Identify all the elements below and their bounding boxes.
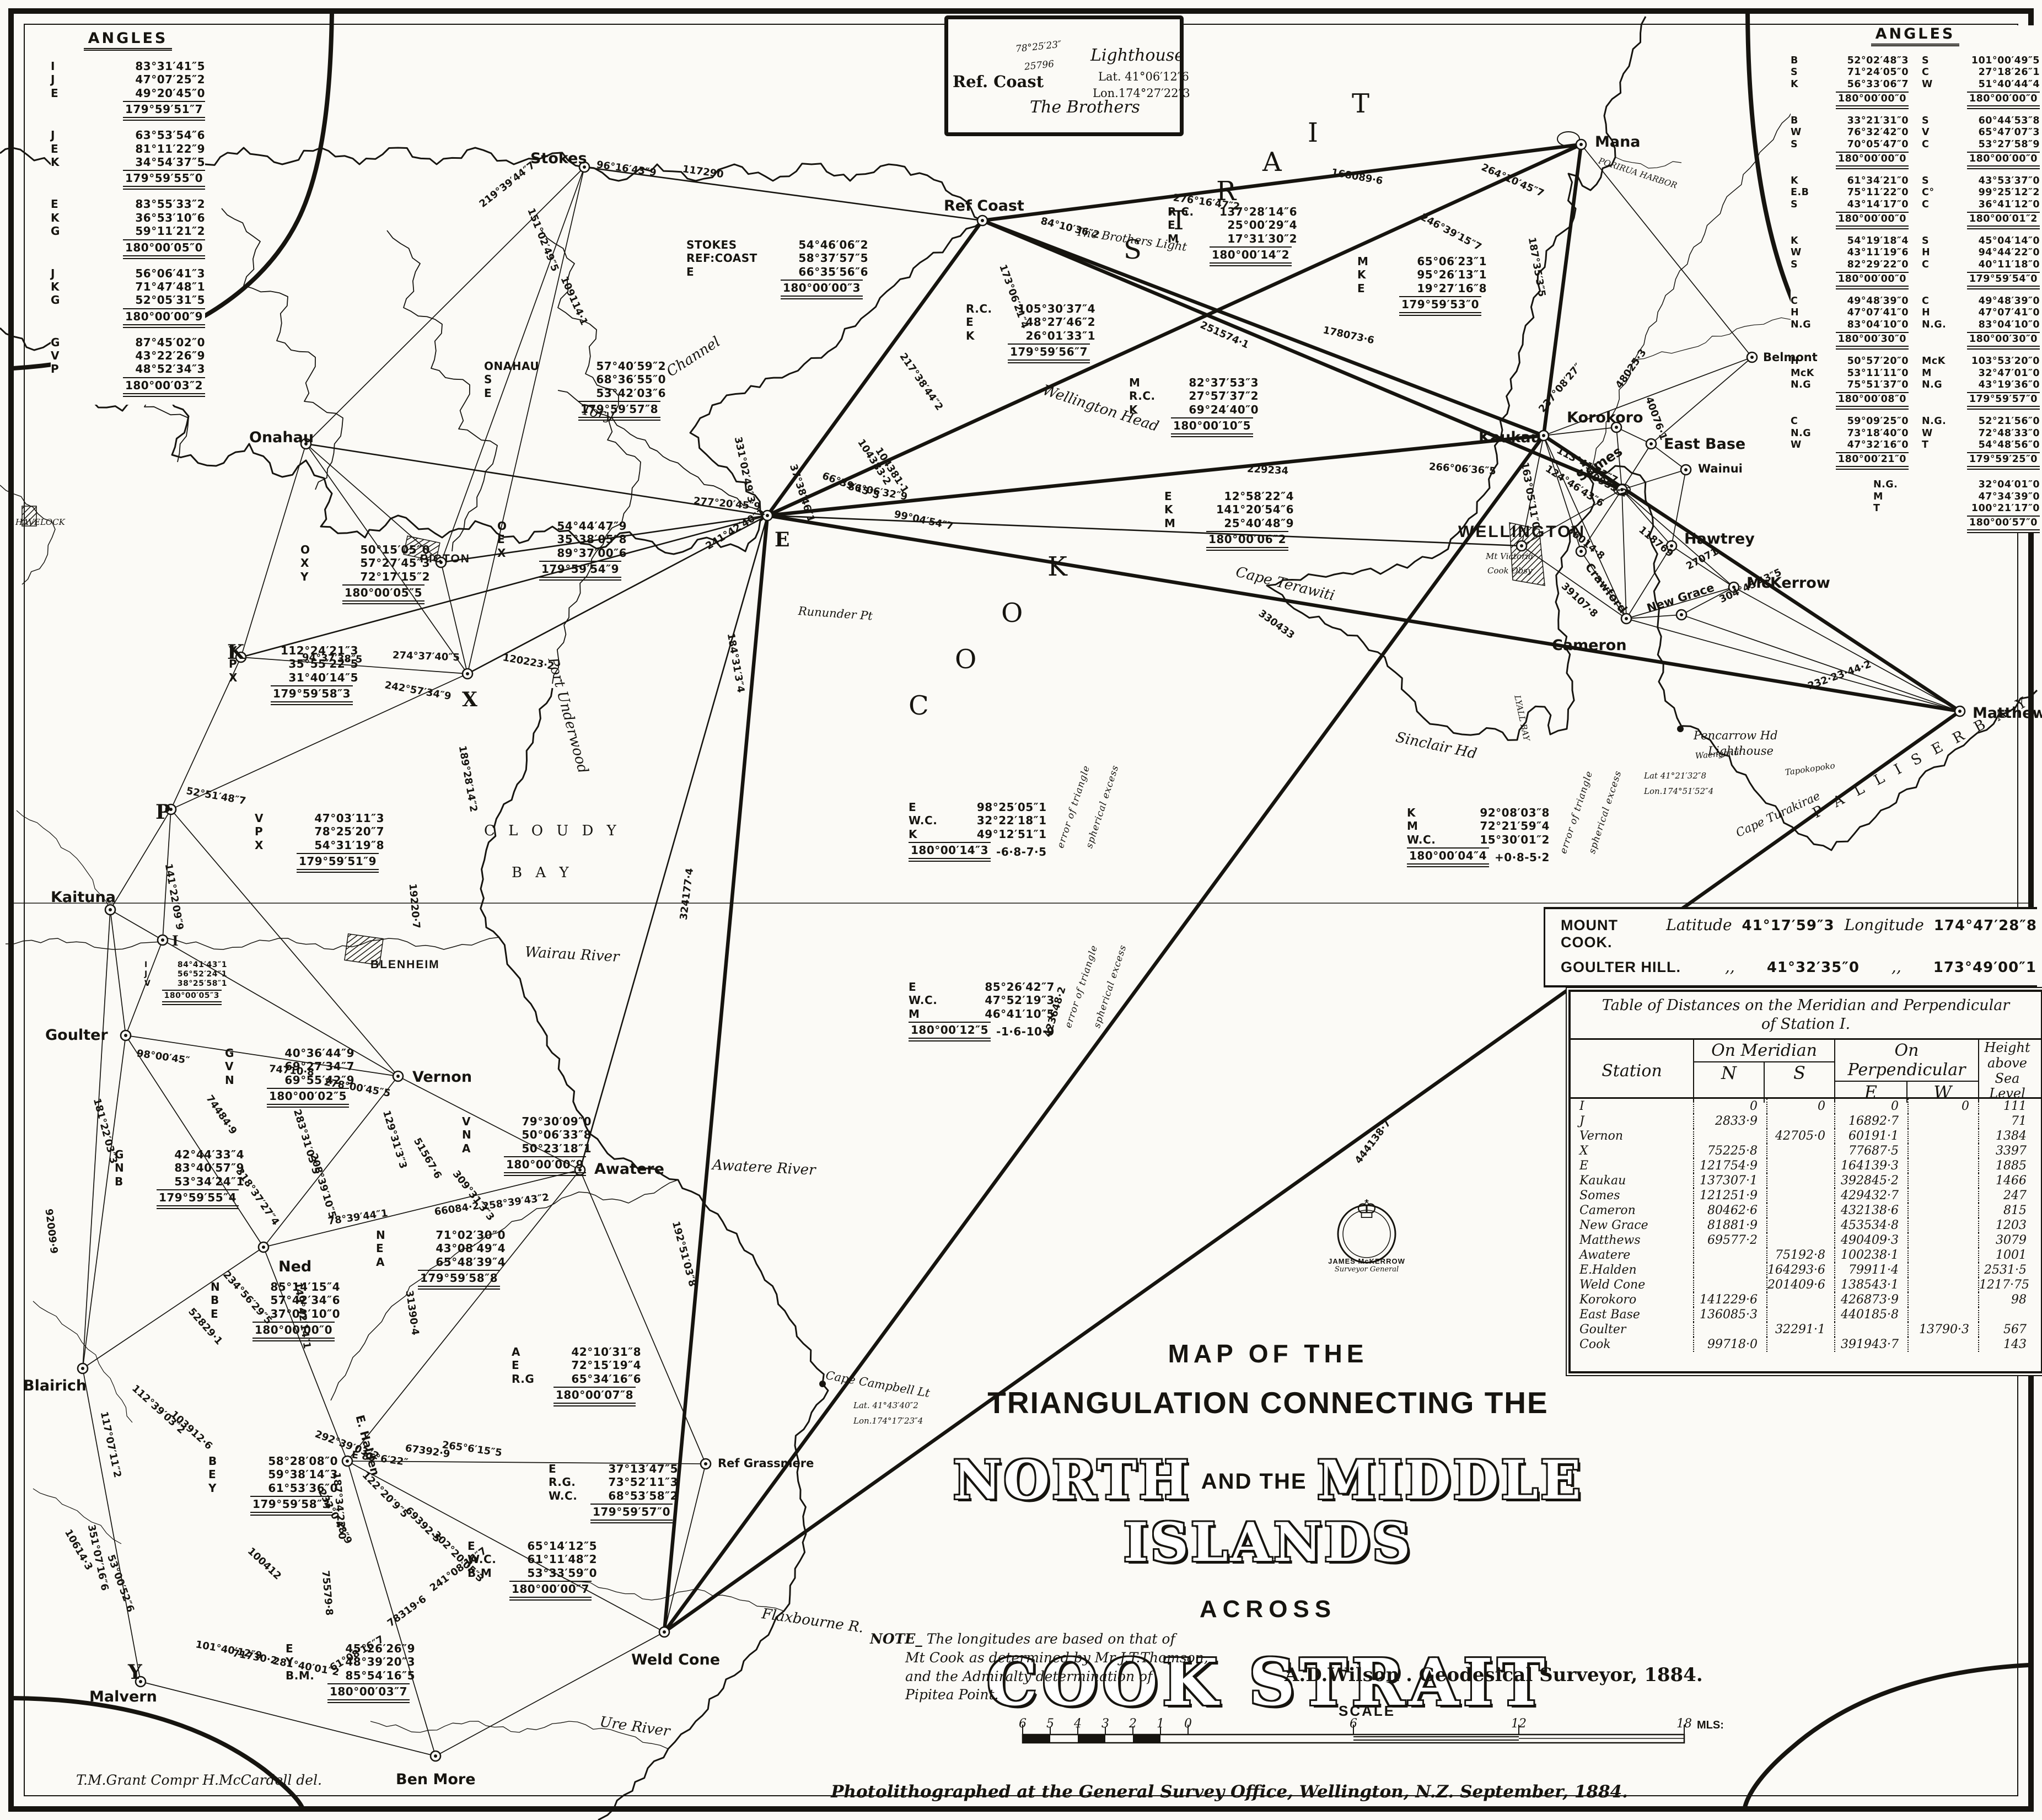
station-marker: [78, 1363, 88, 1373]
angle-block: E12°58′22″4K141°20′54″6M25°40′48″9 180°0…: [1164, 490, 1294, 551]
angle-row: E81°11′22″9: [51, 142, 205, 155]
place-label: Cameron: [1552, 637, 1627, 654]
angle-row: C36°41′12″0: [1922, 199, 2040, 211]
table-cell-s: [1766, 1188, 1834, 1203]
angles-panel-right: ANGLES B52°02′48″3S71°24′05″0K56°33′06″7…: [1791, 25, 2040, 533]
mc-name: MOUNT COOK.: [1561, 917, 1656, 951]
table-cell-station: Vernon: [1571, 1129, 1693, 1143]
table-cell-s: [1766, 1307, 1834, 1322]
angle-sum-row: 179°59′25″0: [1922, 452, 2040, 470]
table-cell-w: [1907, 1248, 1978, 1263]
place-label: E: [775, 528, 789, 551]
table-cell-w: [1907, 1114, 1978, 1129]
angle-block: C49°48′39″0H47°07′41″0N.G.83°04′10″0 180…: [1922, 296, 2040, 350]
table-cell-e: 79911·4: [1834, 1263, 1907, 1277]
place-label: T: [1170, 205, 1187, 236]
angle-row: E98°25′05″1: [909, 801, 1047, 814]
angle-row: M32°47′01″0: [1922, 368, 2040, 379]
angle-row: B53°34′24″1: [115, 1175, 244, 1188]
angle-row: STOKES54°46′06″2: [686, 238, 868, 251]
angle-row: A50°23′18″1: [462, 1142, 592, 1155]
angle-block: E37°13′47″5R.G.73°52′11″3W.C.68°53′58″2 …: [549, 1462, 678, 1523]
angle-row: B58°28′08″0: [208, 1454, 338, 1468]
table-cell-s: 32291·1: [1766, 1322, 1834, 1337]
place-label: McKerrow: [1747, 575, 1830, 592]
table-cell-s: [1766, 1292, 1834, 1307]
angle-row: W.C.32°22′18″1: [909, 814, 1047, 827]
place-label: Hawtrey: [1684, 530, 1755, 547]
title-and-the: AND THE: [1194, 1469, 1315, 1494]
seal-name: JAMES McKERROW: [1325, 1257, 1408, 1265]
table-cell-n: 0: [1693, 1099, 1766, 1114]
station-marker: [158, 935, 168, 945]
table-cell-e: 453534·8: [1834, 1218, 1907, 1233]
table-cell-w: [1907, 1337, 1978, 1352]
station-marker: [659, 1627, 669, 1637]
coastline-path: [387, 230, 497, 551]
table-cell-station: Somes: [1571, 1188, 1693, 1203]
table-cell-station: East Base: [1571, 1307, 1693, 1322]
table-cell-h: 1203: [1978, 1218, 2035, 1233]
angle-sum-row: 180°00′00″3: [686, 280, 868, 299]
note-label: NOTE_: [870, 1631, 927, 1647]
angles-right-bottom: N.G.32°04′01″0M47°34′39″0T100°21′17″0 18…: [1791, 479, 2040, 533]
angle-block: J63°53′54″6E81°11′22″9K34°54′37″5 179°59…: [51, 128, 205, 190]
table-cell-n: 80462·6: [1693, 1203, 1766, 1218]
station-marker: [121, 1030, 131, 1040]
angle-block: I84°41′43″1J56°52′24″1V38°25′58″1 180°00…: [144, 960, 227, 1005]
angle-sum-row: 180°00′00″0: [1791, 152, 1909, 169]
place-label: PICTON: [420, 552, 470, 566]
place-label: I: [172, 933, 179, 949]
angle-sum-row: 180°00′21″0: [1791, 452, 1909, 470]
survey-line: [110, 910, 163, 940]
title-line-1: MAP OF THE: [849, 1339, 1687, 1368]
survey-line: [110, 809, 171, 910]
table-cell-n: [1693, 1322, 1766, 1337]
table-cell-n: 137307·1: [1693, 1173, 1766, 1188]
angle-block: G87°45′02″0V43°22′26″9P48°52′34″3 180°00…: [51, 336, 205, 397]
table-cell-station: E: [1571, 1158, 1693, 1173]
table-cell-s: 164293·6: [1766, 1263, 1834, 1277]
angle-block: E83°55′33″2K36°53′10″6G59°11′21″2 180°00…: [51, 197, 205, 259]
angle-row: X89°37′00″6: [497, 546, 627, 560]
station-marker: [1576, 139, 1586, 149]
angle-row: M72°21′59″4: [1407, 819, 1550, 833]
angle-row: S68°36′55″0: [484, 373, 666, 386]
angle-block: V47°03′11″3P78°25′20″7X54°31′19″8 179°59…: [255, 812, 384, 873]
place-label: S: [1124, 234, 1142, 265]
angle-row: Y72°17′15″2: [300, 570, 430, 583]
scale-label: SCALE: [1339, 1703, 1395, 1720]
angle-sum-row: 179°59′55″0: [51, 170, 205, 190]
table-cell-h: 111: [1978, 1099, 2035, 1114]
angle-row: R.C.105°30′37″4: [966, 302, 1095, 315]
note-block: NOTE_The longitudes are based on that of…: [870, 1630, 1267, 1704]
angle-sum-row: 180°00′30″0: [1791, 332, 1909, 350]
angle-block: J56°06′41″3K71°47′48″1G52°05′31″5 180°00…: [51, 267, 205, 328]
station-marker: [463, 669, 472, 679]
angle-row: J63°53′54″6: [51, 128, 205, 142]
angle-sum-row: 180°00′04″4 +0·8-5·2 error of triangle s…: [1407, 847, 1550, 867]
table-cell-w: [1907, 1143, 1978, 1158]
table-cell-n: 81881·9: [1693, 1218, 1766, 1233]
table-cell-s: [1766, 1158, 1834, 1173]
table-cell-station: Awatere: [1571, 1248, 1693, 1263]
angle-row: P78°25′20″7: [255, 825, 384, 838]
table-row: East Base136085·3440185·8: [1571, 1307, 2041, 1322]
table-cell-n: [1693, 1277, 1766, 1292]
angle-row: M65°06′23″1: [1357, 255, 1487, 268]
angle-row: J56°06′41″3: [51, 267, 205, 280]
table-cell-s: [1766, 1233, 1834, 1248]
angle-row: C49°48′39″0: [1791, 296, 1909, 307]
survey-measurement-label: 229234: [1246, 463, 1288, 477]
table-cell-s: [1766, 1218, 1834, 1233]
note-line: and the Admiralty determination of: [870, 1667, 1267, 1686]
table-cell-w: [1907, 1188, 1978, 1203]
table-cell-e: 77687·5: [1834, 1143, 1907, 1158]
table-row: J2833·916892·771: [1571, 1114, 2041, 1129]
place-label: WELLINGTON: [1458, 523, 1586, 541]
place-label: Malvern: [89, 1688, 157, 1705]
angle-row: C40°11′18″0: [1922, 259, 2040, 271]
station-marker: [431, 1751, 440, 1761]
place-label: Ben More: [396, 1771, 476, 1788]
angle-row: G87°45′02″0: [51, 336, 205, 349]
scale-tick: 5: [1046, 1717, 1054, 1731]
table-cell-n: [1693, 1129, 1766, 1143]
angle-row: M82°37′53″3: [1129, 376, 1259, 389]
note-line: The longitudes are based on that of: [927, 1631, 1175, 1647]
table-cell-station: Weld Cone: [1571, 1277, 1693, 1292]
angle-block: O54°44′47″9E35°38′05″8X89°37′00″6 179°59…: [497, 519, 627, 581]
angle-row: N.G.52°21′56″0: [1922, 416, 2040, 427]
table-cell-e: 164139·3: [1834, 1158, 1907, 1173]
table-cell-e: 391943·7: [1834, 1337, 1907, 1352]
table-cell-station: Goulter: [1571, 1322, 1693, 1337]
angle-sum-row: 179°59′56″7: [966, 343, 1095, 363]
angle-row: X54°31′19″8: [255, 839, 384, 852]
imprint: Photolithographed at the General Survey …: [788, 1782, 1670, 1802]
table-cell-s: 75192·8: [1766, 1248, 1834, 1263]
inset-bearing: 78°25′23″: [1015, 39, 1062, 55]
angle-row: C49°48′39″0: [1922, 296, 2040, 307]
table-cell-w: [1907, 1218, 1978, 1233]
title-line-2: TRIANGULATION CONNECTING THE: [849, 1385, 1687, 1420]
table-cell-s: 201409·6: [1766, 1277, 1834, 1292]
place-label: Mana: [1595, 133, 1641, 151]
table-cell-h: 71: [1978, 1114, 2035, 1129]
angle-block: B52°02′48″3S71°24′05″0K56°33′06″7 180°00…: [1791, 55, 1909, 109]
angle-block: E65°14′12″5W.C.61°11′48″2B.M53°33′59″0 1…: [467, 1539, 597, 1601]
angle-row: N.G83°04′10″0: [1791, 319, 1909, 331]
angle-block: ONAHAU57°40′59″2S68°36′55″0E53°42′03″6 1…: [484, 359, 666, 421]
place-label: X: [462, 688, 477, 711]
table-cell-w: 0: [1907, 1099, 1978, 1114]
survey-line: [1616, 427, 1651, 444]
angle-sum-row: 180°00′00″9: [51, 308, 205, 328]
angle-row: E37°13′47″5: [549, 1462, 678, 1475]
angles-right-col1: B52°02′48″3S71°24′05″0K56°33′06″7 180°00…: [1791, 55, 1909, 476]
map-sheet: ANGLES I83°31′41″5J47°07′25″2E49°20′45″0…: [0, 0, 2042, 1820]
angle-sum-row: 180°00′01″2: [1922, 212, 2040, 229]
angle-block: N.G.52°21′56″0W72°48′33″0T54°48′56″0 179…: [1922, 416, 2040, 470]
table-cell-e: 16892·7: [1834, 1114, 1907, 1129]
gh-ditto2: ,,: [1869, 958, 1901, 976]
table-cell-station: Korokoro: [1571, 1292, 1693, 1307]
author-line: A.D.Wilson . Geodesical Surveyor, 1884.: [1285, 1664, 1703, 1686]
survey-line: [110, 910, 126, 1035]
table-cell-w: [1907, 1203, 1978, 1218]
angle-row: McK103°53′20″0: [1922, 356, 2040, 367]
angle-row: K95°26′13″1: [1357, 268, 1487, 281]
angle-sum-row: 180°00′02″5: [225, 1088, 354, 1108]
angle-sum-row: 180°00′57″0: [1873, 516, 2040, 533]
angle-row: K34°54′37″5: [51, 155, 205, 169]
angle-row: B57°42′34″6: [211, 1293, 340, 1307]
place-label: Lat 41°21′32″8: [1644, 771, 1706, 781]
angle-row: V43°22′26″9: [51, 349, 205, 362]
table-cell-s: 42705·0: [1766, 1129, 1834, 1143]
place-label: K: [1047, 551, 1067, 582]
table-cell-n: 69577·2: [1693, 1233, 1766, 1248]
angle-row: V47°03′11″3: [255, 812, 384, 825]
angle-row: E85°26′42″7: [909, 980, 1055, 994]
mc-lon-value: 174°47′28″8: [1934, 917, 2037, 934]
table-cell-s: 0: [1766, 1099, 1834, 1114]
table-cell-w: [1907, 1277, 1978, 1292]
table-cell-e: 440185·8: [1834, 1307, 1907, 1322]
place-label: R: [1216, 176, 1236, 207]
table-cell-station: New Grace: [1571, 1218, 1693, 1233]
angle-row: E.B75°11′22″0: [1791, 187, 1909, 198]
angle-block: C59°09′25″0N.G73°18′40″0W47°32′16″0 180°…: [1791, 416, 1909, 470]
angle-row: K54°19′18″4: [1791, 235, 1909, 247]
place-label: C L O U D Y: [484, 823, 621, 839]
table-cell-e: [1834, 1322, 1907, 1337]
angle-block: G42°44′33″4N83°40′57″9B53°34′24″1 179°59…: [115, 1148, 244, 1209]
angle-row: C59°09′25″0: [1791, 416, 1909, 427]
angle-block: K54°19′18″4W43°11′19″6S82°29′22″0 180°00…: [1791, 235, 1909, 289]
angle-row: K61°34′21″0: [1791, 175, 1909, 187]
angle-row: O54°44′47″9: [497, 519, 627, 533]
angle-block: S45°04′14″0H94°44′22″0C40°11′18″0 179°59…: [1922, 235, 2040, 289]
angle-row: N.G.83°04′10″0: [1922, 319, 2040, 331]
table-cell-station: X: [1571, 1143, 1693, 1158]
angle-row: O50°15′05″0: [300, 543, 430, 556]
table-cell-s: [1766, 1203, 1834, 1218]
table-cell-h: 98: [1978, 1292, 2035, 1307]
place-label: Y: [128, 1661, 142, 1684]
station-marker: [1676, 610, 1686, 620]
angle-block: R.C.105°30′37″4E48°27′46″2K26°01′33″1 17…: [966, 302, 1095, 363]
angle-row: R.G.73°52′11″3: [549, 1475, 678, 1489]
angle-row: E19°27′16″8: [1357, 282, 1487, 295]
table-row: E121754·9164139·31885: [1571, 1158, 2041, 1173]
angle-row: K69°24′40″0: [1129, 403, 1259, 416]
gh-lon-value: 173°49′00″1: [1911, 959, 2036, 976]
inset-distance: 25796: [1024, 58, 1055, 73]
angle-sum-row: 180°00′00″9: [462, 1156, 592, 1176]
angle-block: B33°21′31″0W76°32′42″0S70°05′47″0 180°00…: [1791, 115, 1909, 169]
place-label: Cook Obsy: [1487, 566, 1532, 576]
angle-row: B52°02′48″3: [1791, 55, 1909, 67]
table-cell-h: 567: [1978, 1322, 2035, 1337]
place-label: C: [909, 690, 929, 721]
place-label: Weld Cone: [631, 1651, 720, 1668]
table-row: Matthews69577·2490409·33079: [1571, 1233, 2041, 1248]
table-cell-h: 1384: [1978, 1129, 2035, 1143]
angle-block: E85°26′42″7W.C.47°52′19″3M46°41′10″5 180…: [909, 980, 1055, 1041]
table-cell-w: [1907, 1233, 1978, 1248]
title-middle-islands: MIDDLE ISLANDS: [1124, 1449, 1583, 1574]
angle-row: C53°27′58″9: [1922, 139, 2040, 151]
angle-row: K56°33′06″7: [1791, 79, 1909, 90]
table-cell-e: 392845·2: [1834, 1173, 1907, 1188]
table-row: Awatere75192·8100238·11001: [1571, 1248, 2041, 1263]
angle-sum-row: 180°00′07″8: [512, 1387, 641, 1406]
place-label: A: [1262, 147, 1282, 178]
title-north: NORTH: [953, 1449, 1191, 1511]
table-cell-h: 1885: [1978, 1158, 2035, 1173]
surveyor-general-seal: ♔ JAMES McKERROW Surveyor General: [1325, 1196, 1408, 1274]
angle-row: V38°25′58″1: [144, 979, 227, 989]
table-cell-h: 815: [1978, 1203, 2035, 1218]
station-marker: [1747, 352, 1757, 362]
angle-row: N.G75°51′37″0: [1791, 379, 1909, 391]
angle-row: W.C.15°30′01″2: [1407, 833, 1550, 846]
survey-line: [436, 1632, 664, 1756]
angle-row: V65°47′07″3: [1922, 127, 2040, 138]
place-label: O: [1001, 598, 1023, 629]
station-marker: [105, 905, 115, 915]
survey-measurement-label: 94°37′38″5: [302, 652, 363, 665]
angle-row: S45°04′14″0: [1922, 235, 2040, 247]
title-line-3: NORTH AND THE MIDDLE ISLANDS: [849, 1449, 1687, 1574]
angle-row: A65°48′39″4: [376, 1255, 506, 1269]
angle-sum-row: 180°00′00″0: [1791, 212, 1909, 229]
scale-tick: 1: [1157, 1717, 1164, 1731]
place-label: HAVELOCK: [15, 517, 65, 527]
angle-row: K36°53′10″6: [51, 211, 205, 224]
angle-sum-row: 180°00′03″2: [51, 377, 205, 397]
scale-tick: 12: [1511, 1717, 1527, 1731]
table-cell-w: [1907, 1173, 1978, 1188]
place-label: Blairich: [23, 1377, 87, 1394]
place-label: Ned: [278, 1258, 311, 1275]
goulter-hill-row: GOULTER HILL. ,, 41°32′35″0 ,, 173°49′00…: [1545, 951, 2037, 976]
angle-sum-row: 180°00′05″0: [51, 239, 205, 259]
station-marker: [1681, 465, 1691, 475]
table-row: Vernon42705·060191·11384: [1571, 1129, 2041, 1143]
inset-lat: Lat. 41°06′12″6: [1098, 70, 1189, 83]
angle-row: E43°08′49″4: [376, 1242, 506, 1255]
table-cell-n: 75225·8: [1693, 1143, 1766, 1158]
place-label: Awatere: [594, 1161, 664, 1178]
table-cell-station: Kaukau: [1571, 1173, 1693, 1188]
table-cell-e: 0: [1834, 1099, 1907, 1114]
angle-sum-row: 180°00′03″7: [286, 1683, 415, 1703]
table-cell-station: J: [1571, 1114, 1693, 1129]
coastline-path: [541, 230, 641, 684]
table-row: Kaukau137307·1392845·21466: [1571, 1173, 2041, 1188]
angle-sum-row: 180°00′12″5 -1·6-10·9 error of triangle …: [909, 1022, 1055, 1041]
angles-title: ANGLES: [1871, 25, 1960, 46]
angle-row: X31°40′14″5: [229, 671, 358, 684]
angle-row: J56°52′24″1: [144, 970, 227, 979]
angle-row: H47°07′41″0: [1791, 307, 1909, 319]
angle-row: X57°27′45″3: [300, 556, 430, 570]
table-cell-e: 60191·1: [1834, 1129, 1907, 1143]
mc-lat-label: Latitude: [1666, 916, 1732, 934]
angle-sum-row: 180°00′14″3 -6·8-7·5 error of triangle s…: [909, 842, 1047, 862]
scale-tick: 0: [1184, 1717, 1192, 1731]
angle-sum-row: 179°59′53″0: [1357, 296, 1487, 316]
table-cell-h: 247: [1978, 1188, 2035, 1203]
angle-sum-row: 179°59′55″4: [115, 1189, 244, 1209]
scale-tick: 2: [1129, 1717, 1137, 1731]
survey-line: [767, 516, 1522, 546]
angle-row: S60°44′53″8: [1922, 115, 2040, 127]
table-cell-station: E.Halden: [1571, 1263, 1693, 1277]
angle-row: W72°48′33″0: [1922, 428, 2040, 439]
table-cell-s: [1766, 1143, 1834, 1158]
angle-block: S43°53′37″0C°99°25′12″2C36°41′12″0 180°0…: [1922, 175, 2040, 229]
angle-row: E12°58′22″4: [1164, 490, 1294, 503]
table-cell-station: Matthews: [1571, 1233, 1693, 1248]
angle-row: T100°21′17″0: [1873, 503, 2040, 514]
table-row: Cameron80462·6432138·6815: [1571, 1203, 2041, 1218]
table-cell-w: 13790·3: [1907, 1322, 1978, 1337]
table-cell-n: [1693, 1263, 1766, 1277]
mc-lon-label: Longitude: [1845, 916, 1924, 934]
table-cell-n: 121251·9: [1693, 1188, 1766, 1203]
angle-sum-row: 180°00′00″0: [1922, 92, 2040, 109]
station-marker: [701, 1459, 711, 1469]
crown-icon: ♔: [1325, 1196, 1408, 1222]
table-cell-n: 141229·6: [1693, 1292, 1766, 1307]
angle-row: N.G73°18′40″0: [1791, 428, 1909, 439]
table-cell-h: 3397: [1978, 1143, 2035, 1158]
place-label: Onahau: [249, 429, 314, 446]
inset-lighthouse-label: Lighthouse: [1090, 46, 1184, 65]
angle-block: V79°30′09″0N50°06′33″8A50°23′18″1 180°00…: [462, 1115, 592, 1176]
survey-line: [1681, 615, 1960, 711]
table-cell-e: 138543·1: [1834, 1277, 1907, 1292]
angle-row: W.C.47°52′19″3: [909, 994, 1055, 1007]
angle-sum-row: 180°00′00″0: [211, 1322, 340, 1341]
table-row: Weld Cone201409·6138543·11217·75: [1571, 1277, 2041, 1292]
angle-block: A42°10′31″8E72°15′19″4R.G65°34′16″6 180°…: [512, 1345, 641, 1406]
table-cell-h: 3079: [1978, 1233, 2035, 1248]
angle-row: K49°12′51″1: [909, 828, 1047, 841]
angle-row: E37°03′10″0: [211, 1307, 340, 1320]
angle-sum-row: 180°00′00″0: [1922, 152, 2040, 169]
table-cell-h: 2531·5: [1978, 1263, 2035, 1277]
table-cell-n: 136085·3: [1693, 1307, 1766, 1322]
angle-row: N71°02′30″0: [376, 1228, 506, 1242]
place-label: Lon.174°51′52″4: [1644, 786, 1713, 796]
mount-cook-box: MOUNT COOK. Latitude 41°17′59″3 Longitud…: [1544, 907, 2037, 987]
mc-lat-value: 41°17′59″3: [1742, 917, 1835, 934]
table-cell-s: [1766, 1173, 1834, 1188]
angle-row: E53°42′03″6: [484, 386, 666, 400]
table-cell-e: 426873·9: [1834, 1292, 1907, 1307]
angle-row: W43°11′19″6: [1791, 247, 1909, 259]
angle-sum-row: 179°59′51″7: [51, 101, 205, 121]
table-row: E.Halden164293·679911·42531·5: [1571, 1263, 2041, 1277]
